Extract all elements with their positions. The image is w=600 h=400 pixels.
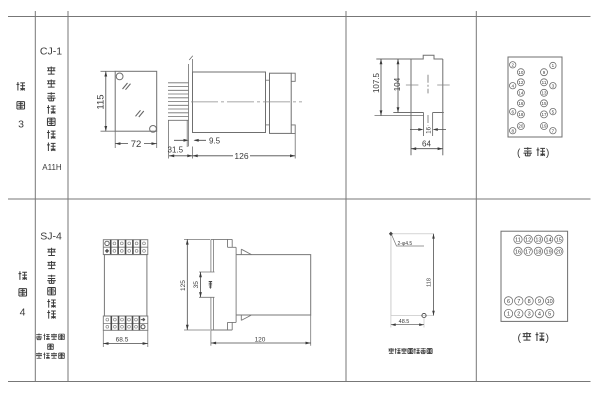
svg-text:4: 4 (538, 312, 541, 318)
svg-text:14: 14 (518, 91, 524, 96)
svg-text:13: 13 (535, 237, 541, 243)
svg-text:16: 16 (426, 126, 432, 133)
svg-text:18: 18 (535, 249, 541, 255)
svg-text:18: 18 (518, 112, 524, 117)
svg-text:12: 12 (525, 237, 531, 243)
svg-text:): ) (546, 332, 550, 344)
svg-text:14: 14 (546, 237, 552, 243)
svg-text:3: 3 (528, 312, 531, 318)
svg-text:35: 35 (193, 281, 200, 289)
svg-text:17: 17 (525, 249, 531, 255)
svg-text:11: 11 (542, 80, 547, 85)
svg-text:CJ-1: CJ-1 (40, 46, 62, 58)
svg-text:17: 17 (541, 112, 547, 117)
svg-text:9: 9 (538, 299, 541, 305)
svg-text:19: 19 (541, 124, 547, 129)
svg-text:20: 20 (518, 124, 524, 129)
svg-text:15: 15 (556, 237, 562, 243)
svg-text:10: 10 (518, 70, 524, 75)
svg-text:16: 16 (515, 249, 521, 255)
svg-text:13: 13 (541, 91, 547, 96)
svg-text:125: 125 (180, 280, 187, 291)
svg-text:11: 11 (515, 237, 521, 243)
svg-text:72: 72 (131, 139, 142, 150)
svg-text:A11H: A11H (42, 163, 62, 172)
svg-text:15: 15 (541, 101, 547, 106)
svg-text:1: 1 (507, 312, 510, 318)
svg-text:7: 7 (517, 299, 520, 305)
svg-text:118: 118 (427, 278, 433, 287)
svg-text:5: 5 (548, 312, 551, 318)
svg-text:64: 64 (422, 140, 431, 149)
svg-text:107.5: 107.5 (372, 72, 381, 93)
svg-text:3: 3 (18, 119, 24, 131)
svg-text:120: 120 (255, 337, 266, 344)
svg-text:12: 12 (518, 80, 524, 85)
svg-text:9.5: 9.5 (209, 137, 221, 146)
svg-text:68.5: 68.5 (116, 337, 129, 344)
svg-text:115: 115 (96, 94, 107, 109)
svg-text:SJ-4: SJ-4 (40, 230, 62, 242)
svg-text:104: 104 (393, 77, 402, 91)
svg-text:19: 19 (546, 249, 552, 255)
svg-text:2: 2 (517, 312, 520, 318)
svg-text:31.5: 31.5 (168, 146, 184, 155)
svg-text:16: 16 (518, 101, 524, 106)
svg-text:4: 4 (20, 306, 26, 318)
svg-text:20: 20 (556, 249, 562, 255)
svg-text:8: 8 (528, 299, 531, 305)
svg-text:10: 10 (547, 299, 553, 305)
svg-text:): ) (546, 148, 549, 159)
svg-text:126: 126 (234, 151, 248, 161)
svg-text:48.5: 48.5 (399, 319, 410, 325)
svg-text:2-φ4.5: 2-φ4.5 (398, 241, 413, 247)
svg-text:6: 6 (507, 299, 510, 305)
svg-text:(: ( (518, 332, 522, 344)
